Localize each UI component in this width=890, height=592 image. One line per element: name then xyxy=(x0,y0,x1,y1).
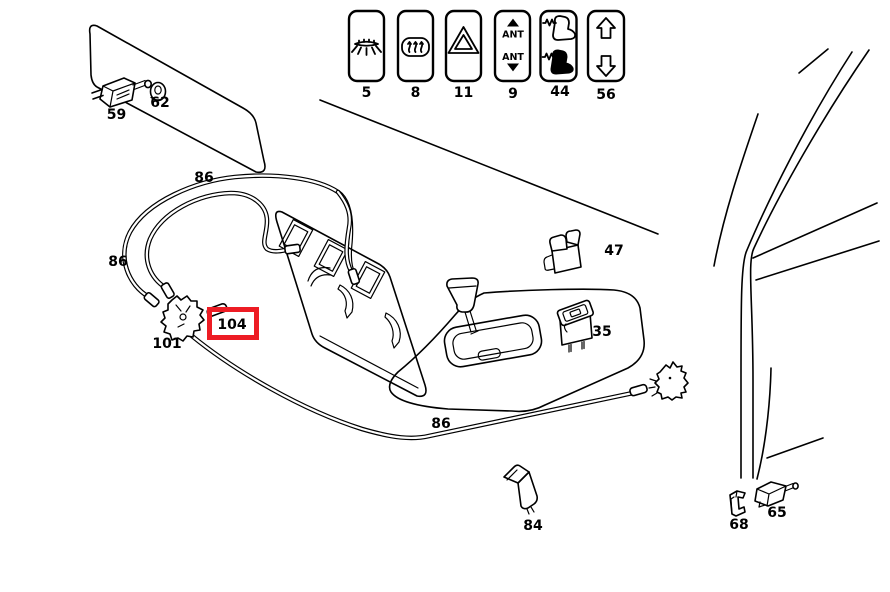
part-label-104: 104 xyxy=(217,317,246,333)
part-label-47: 47 xyxy=(604,243,623,259)
part-59-switch xyxy=(92,78,151,107)
button-label-9: 9 xyxy=(508,86,518,102)
part-label-86-top: 86 xyxy=(194,170,213,186)
switch-button-56 xyxy=(588,11,624,81)
switch-button-row: ANT ANT xyxy=(349,11,624,81)
shifter-console xyxy=(390,278,645,411)
part-68-bracket xyxy=(730,491,745,516)
part-label-62: 62 xyxy=(150,95,169,111)
part-65-switch xyxy=(755,482,798,507)
part-label-101: 101 xyxy=(152,336,181,352)
ant-down-label: ANT xyxy=(502,52,524,63)
dashboard-edge-line xyxy=(320,100,658,234)
button-label-44: 44 xyxy=(550,84,570,100)
switch-button-9: ANT ANT xyxy=(495,11,530,81)
part-101-connector xyxy=(161,296,204,341)
switch-button-8 xyxy=(398,11,433,81)
ant-up-label: ANT xyxy=(502,30,524,41)
switch-button-11 xyxy=(446,11,481,81)
button-label-11: 11 xyxy=(454,85,473,101)
button-label-56: 56 xyxy=(596,87,615,103)
part-label-59: 59 xyxy=(107,107,126,123)
parts-diagram-page: ANT ANT 5 8 11 9 44 xyxy=(0,0,890,592)
parts-diagram-canvas: ANT ANT 5 8 11 9 44 xyxy=(0,0,890,592)
part-84-plug xyxy=(504,465,537,514)
car-body-outline xyxy=(714,49,879,479)
switch-button-44 xyxy=(541,11,577,81)
part-label-86-left: 86 xyxy=(108,254,127,270)
part-label-84: 84 xyxy=(523,518,543,534)
button-label-5: 5 xyxy=(362,85,372,101)
shift-gate xyxy=(442,313,543,369)
part-35-switch xyxy=(557,300,594,352)
button-label-8: 8 xyxy=(411,85,421,101)
switch-carrier-panel xyxy=(276,192,426,396)
part-label-86-bottom: 86 xyxy=(431,416,450,432)
switch-button-5 xyxy=(349,11,384,81)
part-47-relay xyxy=(544,230,581,273)
part-label-35: 35 xyxy=(592,324,611,340)
cable-86-end-connector xyxy=(649,362,688,400)
part-label-65: 65 xyxy=(767,505,786,521)
cable-86-harness xyxy=(124,176,633,438)
part-label-68: 68 xyxy=(729,517,748,533)
